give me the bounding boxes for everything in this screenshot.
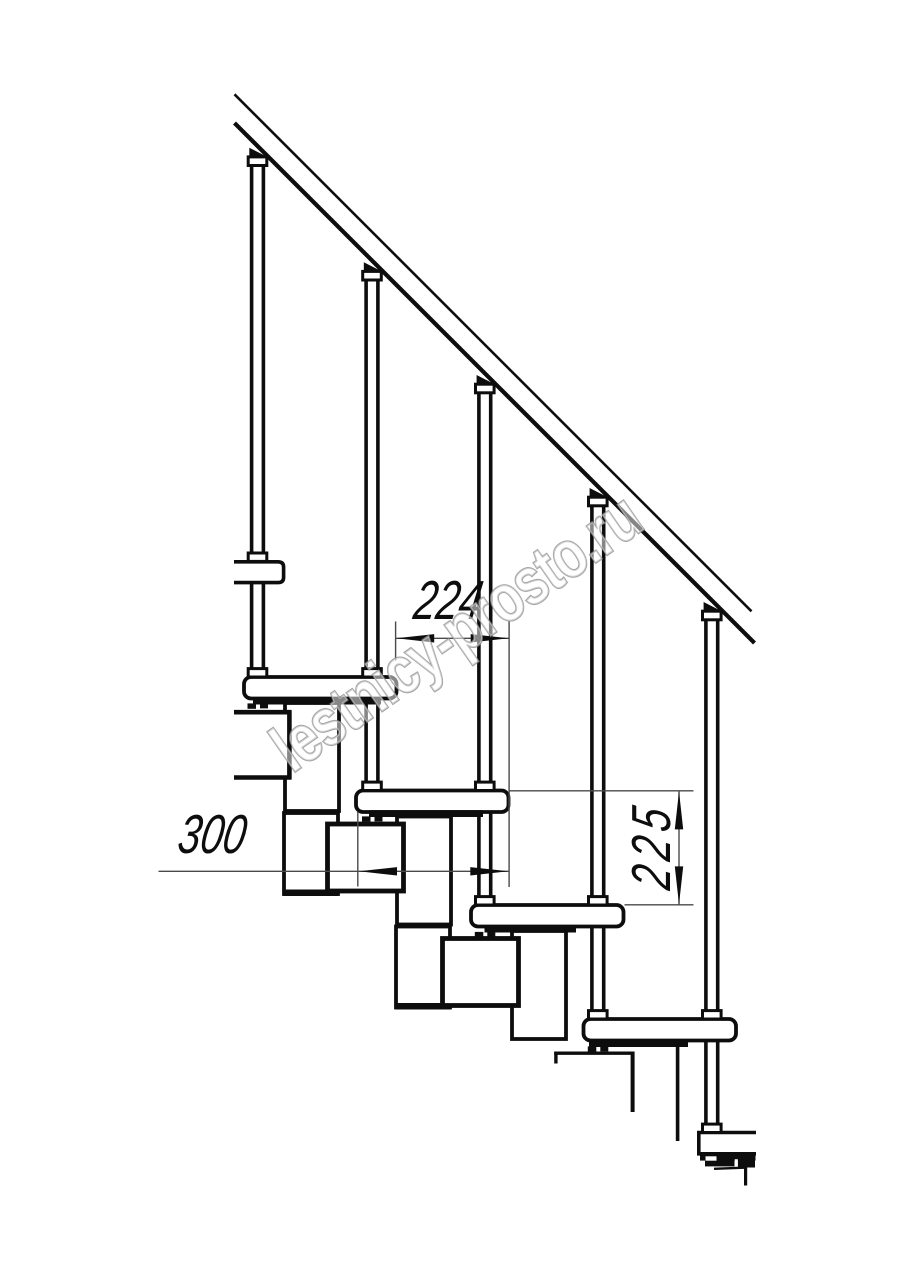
svg-text:225: 225 (621, 796, 682, 894)
svg-text:300: 300 (174, 804, 251, 865)
